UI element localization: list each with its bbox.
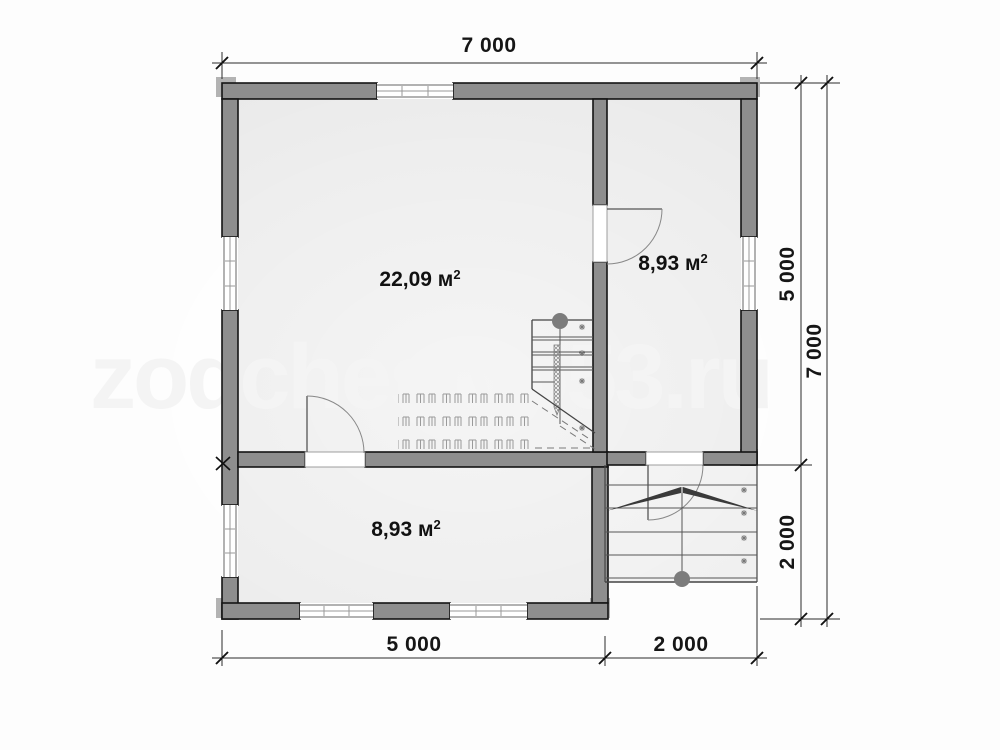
porch-knob	[674, 571, 690, 587]
interior-wall-upper	[593, 99, 607, 205]
room-area-bottom-sup: 2	[434, 517, 441, 532]
room-label-top-right: 8,93 м2	[593, 251, 753, 276]
left-wall-middle	[222, 310, 238, 505]
room-area-top-right-sup: 2	[701, 251, 708, 266]
hall-bottom-wall-right	[703, 452, 757, 465]
stair-start-knob	[552, 313, 568, 329]
bottom-wall-seg3	[527, 603, 608, 619]
window-left-upper	[222, 237, 238, 310]
dim-label-top-width: 7 000	[429, 34, 549, 58]
room-area-living-sup: 2	[453, 267, 460, 282]
middle-wall-left	[238, 452, 305, 467]
hall-bottom-wall-left	[607, 452, 646, 465]
dim-label-right-total: 7 000	[803, 291, 829, 411]
plank-hatch	[398, 389, 530, 451]
window-left-lower	[222, 505, 238, 577]
room-area-top-right: 8,93 м	[638, 252, 700, 275]
dim-label-right-upper: 5 000	[776, 214, 802, 334]
window-top	[377, 83, 453, 99]
dim-label-bottom-right: 2 000	[621, 633, 741, 657]
room-area-living: 22,09 м	[379, 268, 453, 291]
floor-plan-drawing: zodchestvo53.ru	[0, 0, 1000, 750]
room-label-bottom: 8,93 м2	[326, 517, 486, 542]
bottom-wall-seg2	[373, 603, 450, 619]
dim-label-right-lower: 2 000	[776, 482, 802, 602]
left-wall-upper	[222, 99, 238, 237]
floor-plan-page: zodchestvo53.ru	[0, 0, 1000, 750]
interior-wall-lower	[593, 262, 607, 452]
top-wall-right	[453, 83, 757, 99]
window-bottom-1	[300, 603, 373, 619]
top-wall-left	[222, 83, 377, 99]
middle-wall-right	[365, 452, 608, 467]
right-wall-lower	[741, 310, 757, 465]
window-bottom-2	[450, 603, 527, 619]
room-area-bottom: 8,93 м	[371, 518, 433, 541]
bottom-wall-seg1	[222, 603, 300, 619]
right-wall-upper	[741, 99, 757, 237]
dim-label-bottom-left: 5 000	[354, 633, 474, 657]
room-label-living: 22,09 м2	[330, 267, 510, 292]
